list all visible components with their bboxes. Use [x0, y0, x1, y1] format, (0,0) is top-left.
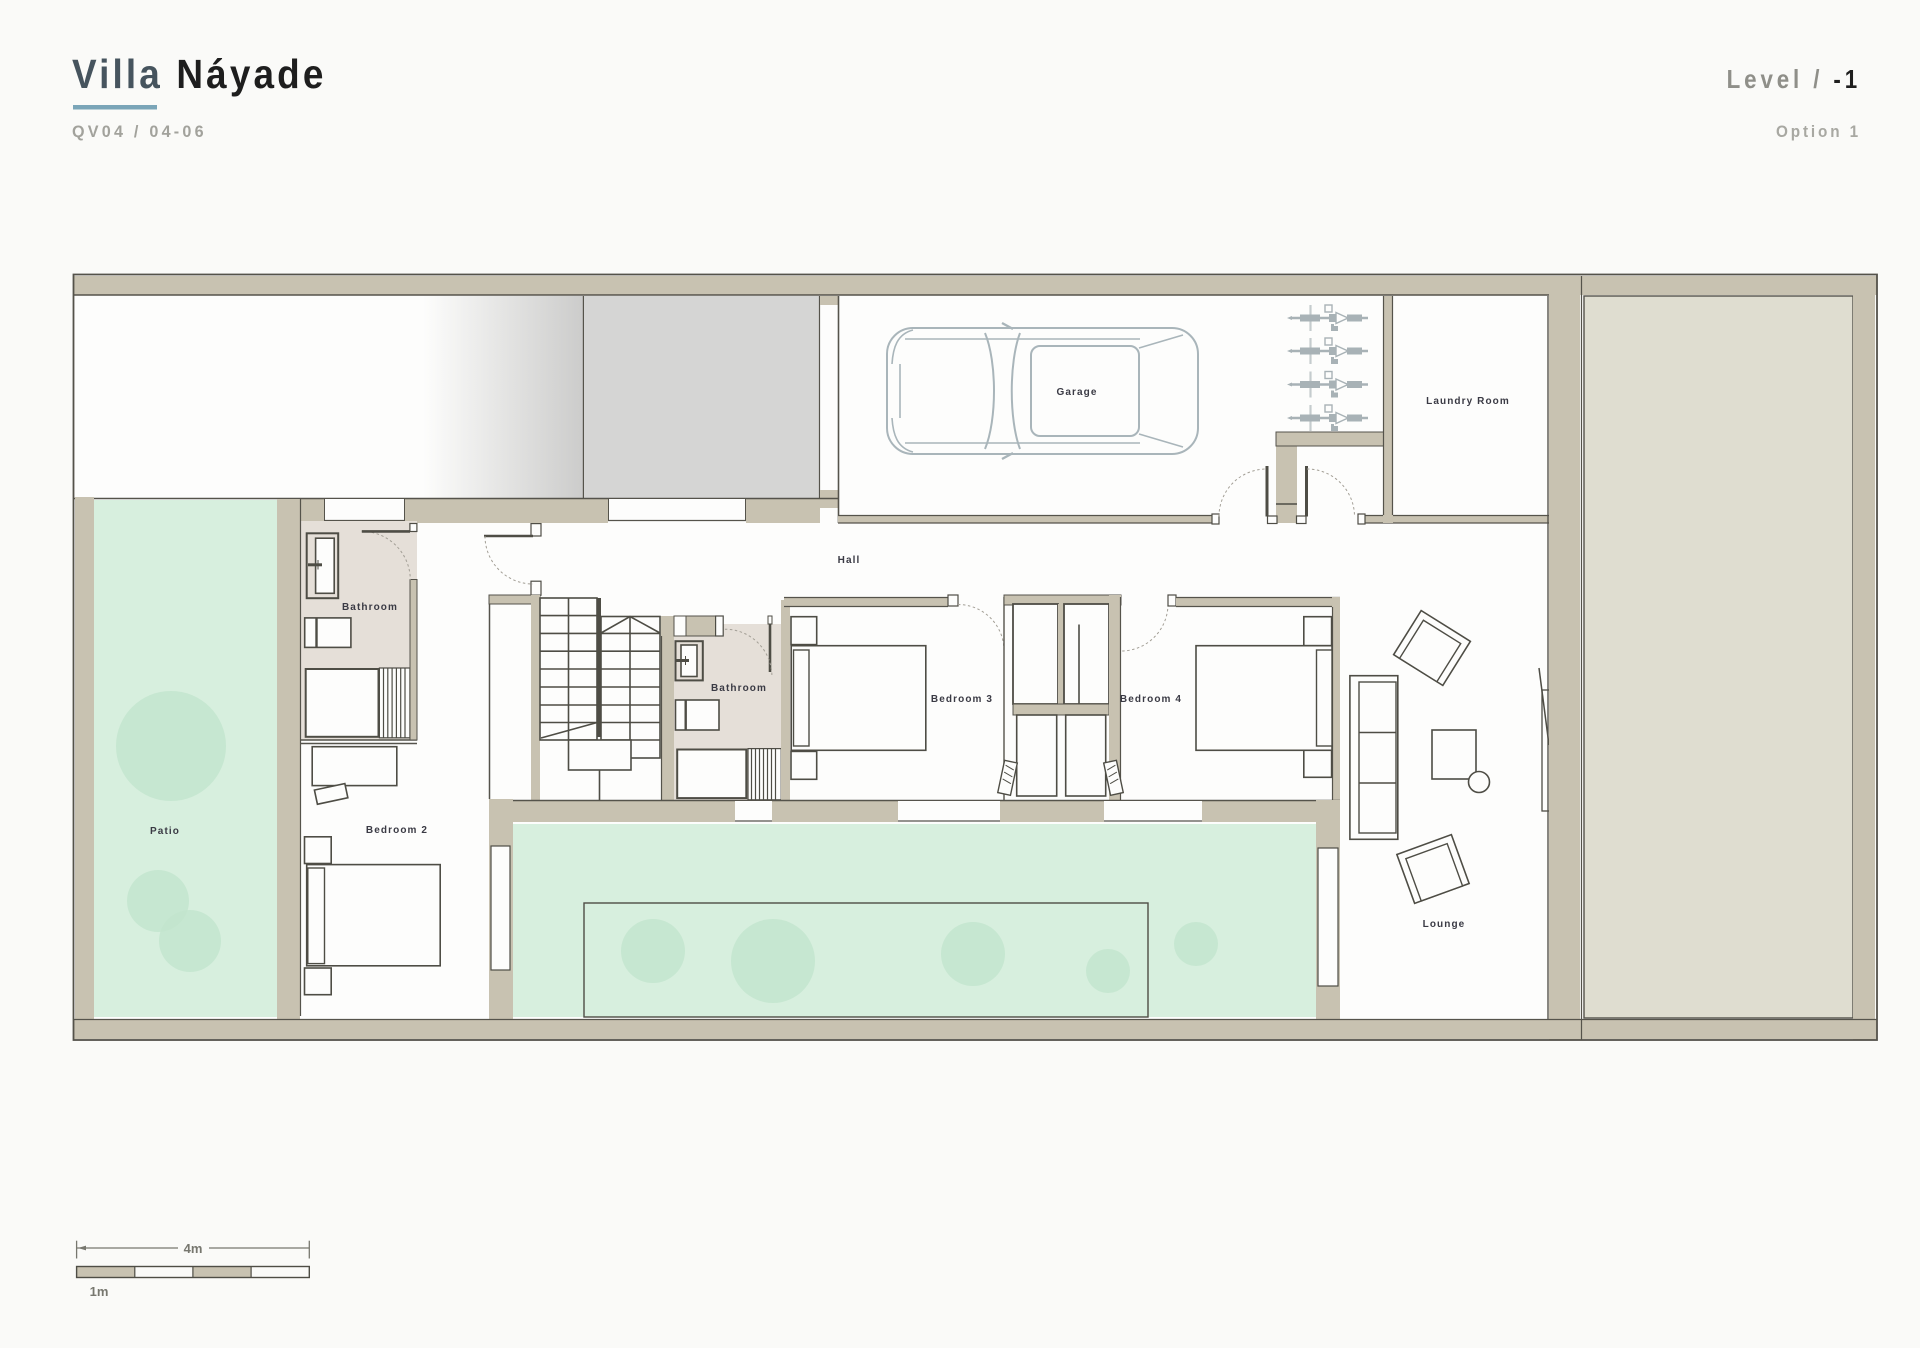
svg-text:QV04 / 04-06: QV04 / 04-06: [72, 122, 207, 141]
svg-text:Villa Náyade: Villa Náyade: [72, 52, 327, 97]
svg-text:Bedroom 2: Bedroom 2: [366, 825, 428, 836]
svg-text:Garage: Garage: [1056, 387, 1097, 398]
svg-text:Bathroom: Bathroom: [711, 683, 767, 694]
svg-text:Bedroom 4: Bedroom 4: [1120, 694, 1182, 705]
svg-text:1m: 1m: [90, 1284, 109, 1299]
svg-text:Bathroom: Bathroom: [342, 602, 398, 613]
svg-text:Laundry Room: Laundry Room: [1426, 396, 1510, 407]
svg-text:Bedroom 3: Bedroom 3: [931, 694, 993, 705]
svg-text:Lounge: Lounge: [1423, 919, 1466, 930]
svg-text:4m: 4m: [184, 1241, 203, 1256]
svg-text:Option 1: Option 1: [1776, 122, 1861, 141]
svg-text:Patio: Patio: [150, 826, 180, 837]
svg-text:Hall: Hall: [838, 555, 861, 566]
svg-text:Level / -1: Level / -1: [1727, 65, 1861, 94]
